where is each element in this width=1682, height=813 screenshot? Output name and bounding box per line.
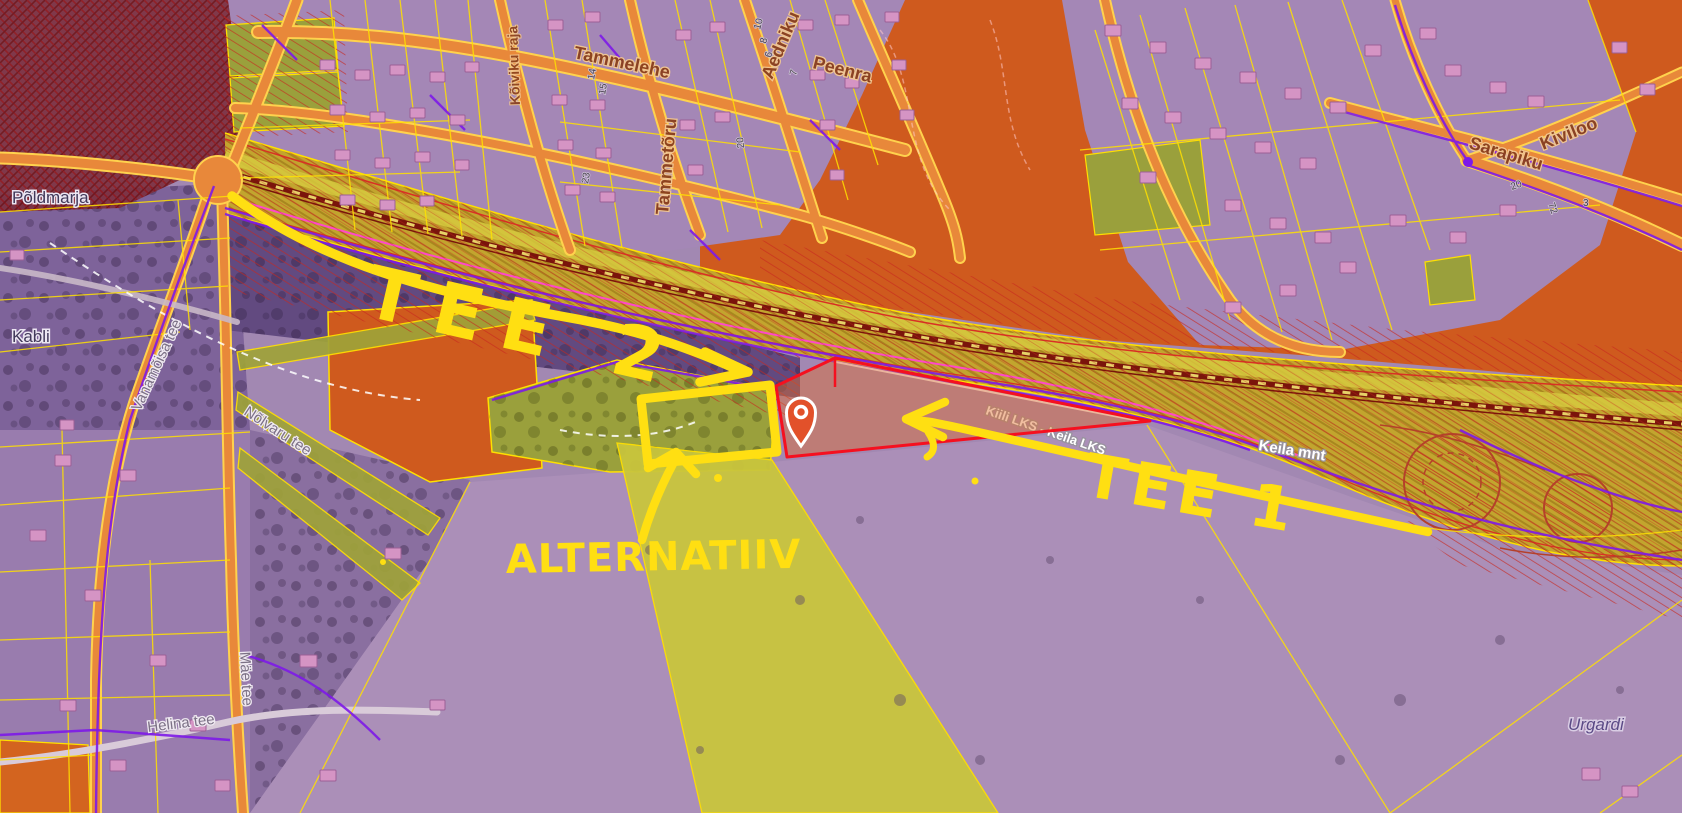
place-label-kabli: Kabli <box>12 327 50 346</box>
street-label-koiviku-raja: Kõiviku raja <box>504 25 523 105</box>
left-forest-trees <box>0 183 250 430</box>
svg-text:3: 3 <box>1583 198 1589 209</box>
place-label-poldmarja: Põldmarja <box>12 188 89 207</box>
road-label-mae-tee: Mäe tee <box>236 651 256 706</box>
svg-text:20: 20 <box>735 136 747 148</box>
utility-node <box>1463 157 1473 167</box>
parcel-olive-ne2 <box>1425 255 1475 305</box>
place-label-urgardi: Urgardi <box>1568 715 1625 734</box>
annotation-label-alternatiiv: ALTERNATIIV <box>505 532 801 583</box>
map-screenshot: Põldmarja Kabli Urgardi Tammelehe Tammet… <box>0 0 1682 813</box>
map-canvas[interactable]: Põldmarja Kabli Urgardi Tammelehe Tammet… <box>0 0 1682 813</box>
